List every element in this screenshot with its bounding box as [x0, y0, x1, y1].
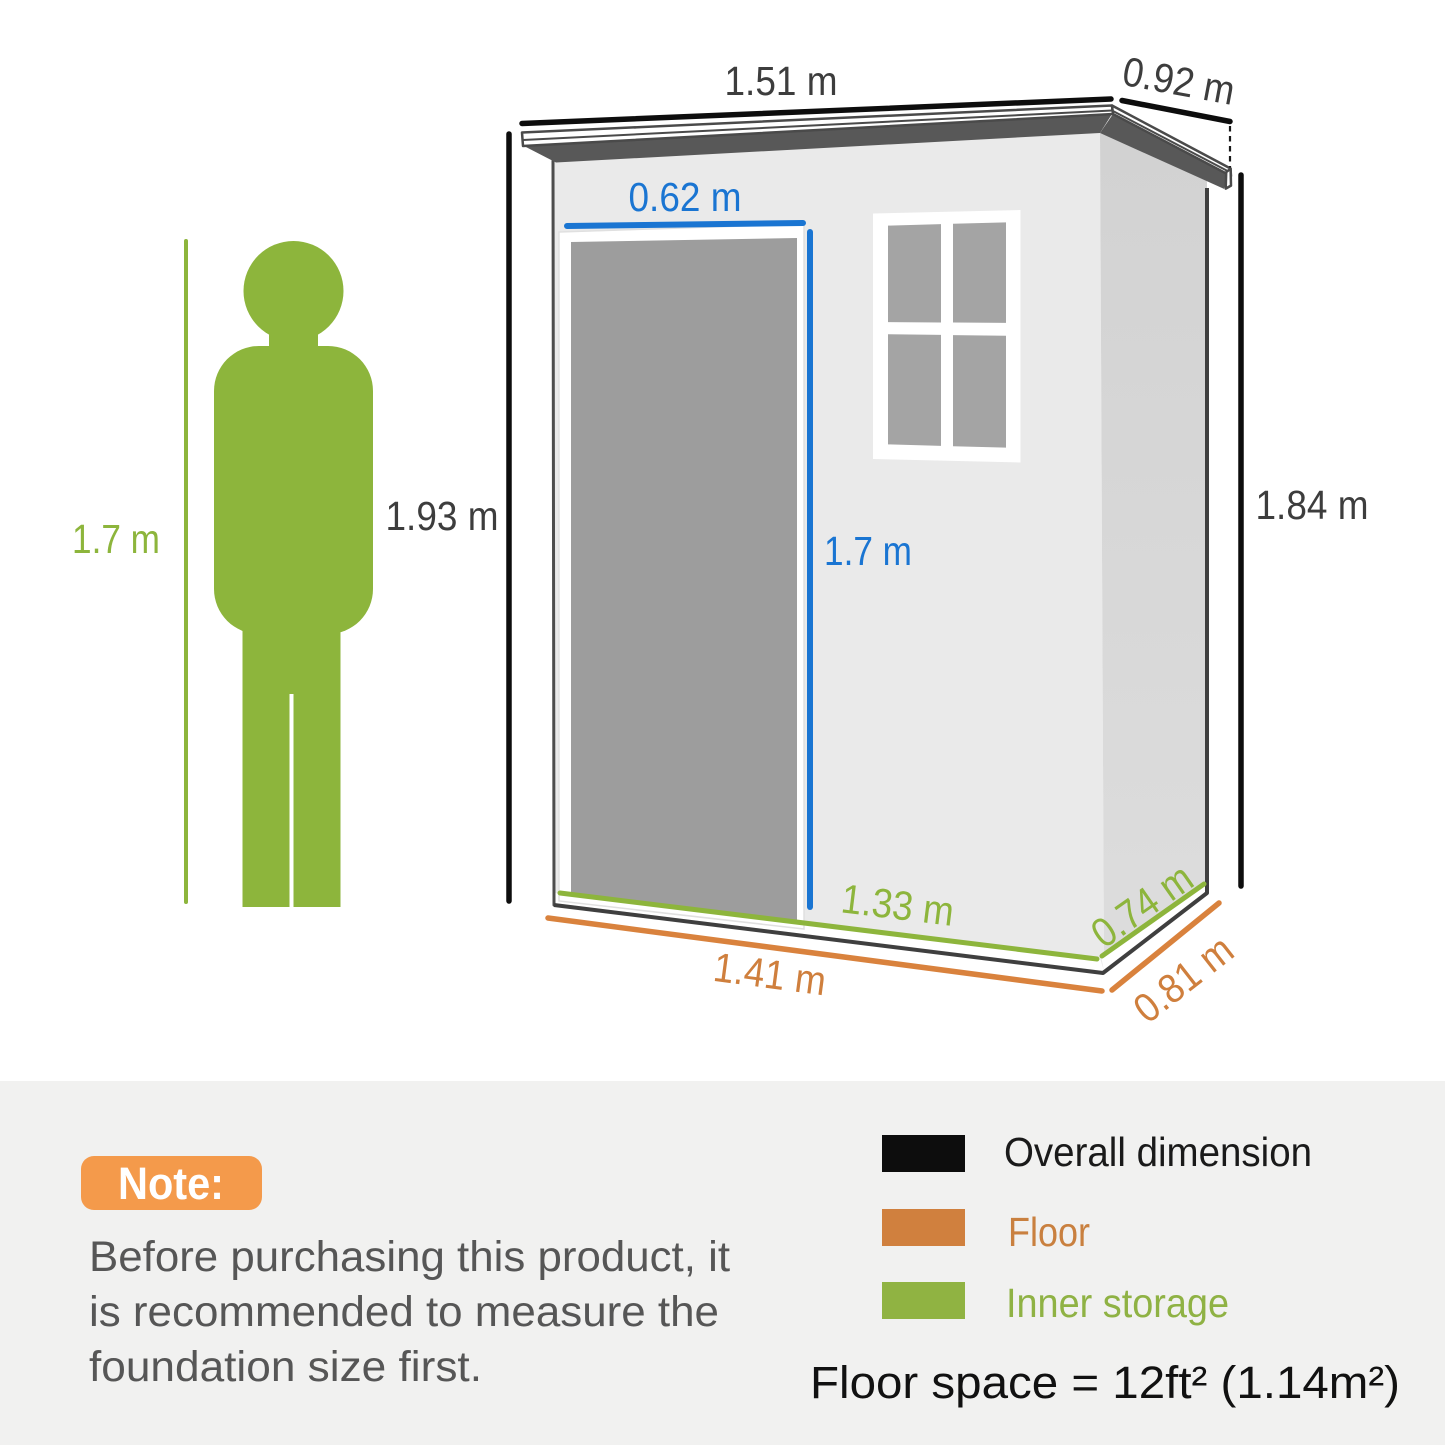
svg-text:1.7 m: 1.7 m [824, 528, 912, 574]
svg-text:Overall dimension: Overall dimension [1004, 1129, 1312, 1175]
svg-text:foundation size first.: foundation size first. [89, 1343, 482, 1391]
svg-text:1.93 m: 1.93 m [386, 493, 499, 539]
svg-text:is recommended to measure the: is recommended to measure the [89, 1288, 719, 1336]
svg-text:Before purchasing this product: Before purchasing this product, it [89, 1233, 730, 1281]
svg-text:Floor space = 12ft² (1.14m²): Floor space = 12ft² (1.14m²) [810, 1357, 1400, 1408]
svg-text:1.51 m: 1.51 m [725, 58, 838, 104]
svg-text:1.7 m: 1.7 m [72, 516, 160, 562]
svg-text:Floor: Floor [1008, 1209, 1090, 1255]
svg-text:Note:: Note: [118, 1158, 224, 1209]
svg-text:Inner storage: Inner storage [1006, 1280, 1229, 1326]
svg-text:0.62 m: 0.62 m [629, 174, 742, 220]
svg-text:1.84 m: 1.84 m [1256, 482, 1369, 528]
